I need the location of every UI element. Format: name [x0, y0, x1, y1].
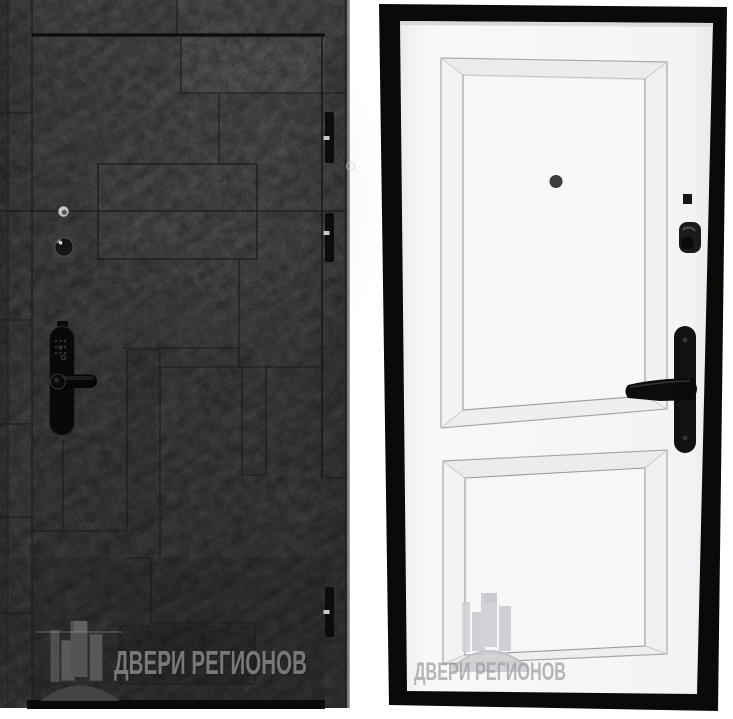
- svg-text:ДВЕРИ РЕГИОНОВ: ДВЕРИ РЕГИОНОВ: [414, 658, 566, 686]
- svg-text:ДВЕРИ РЕГИОНОВ: ДВЕРИ РЕГИОНОВ: [114, 644, 307, 681]
